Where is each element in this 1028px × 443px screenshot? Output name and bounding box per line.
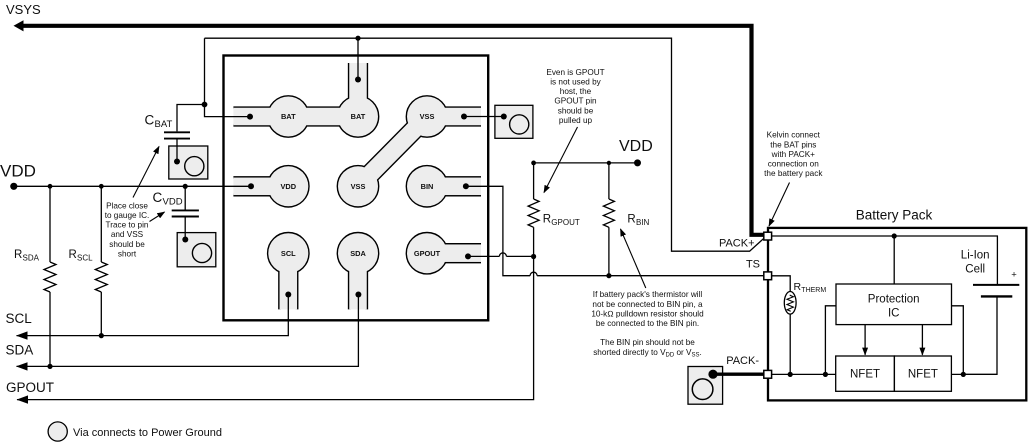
svg-text:THERM: THERM [801,287,826,294]
svg-text:SCL: SCL [6,311,33,326]
svg-text:C: C [145,113,155,128]
svg-text:SDA: SDA [6,343,34,358]
svg-text:R: R [543,214,551,226]
svg-text:Protection: Protection [868,293,920,305]
svg-text:NFET: NFET [908,369,938,381]
svg-text:C: C [153,190,163,205]
svg-text:GPOUT: GPOUT [6,380,54,395]
svg-text:R: R [69,249,77,261]
svg-text:NFET: NFET [850,369,880,381]
svg-text:should be: should be [558,106,594,115]
svg-text:Place close: Place close [106,201,148,210]
svg-text:be connected to the BIN pin.: be connected to the BIN pin. [596,319,699,328]
svg-text:Via connects to Power Ground: Via connects to Power Ground [73,427,222,439]
svg-text:If battery pack's thermistor w: If battery pack's thermistor will [593,290,703,299]
svg-text:+: + [1011,269,1017,280]
svg-text:BIN: BIN [421,182,434,191]
svg-text:GPOUT: GPOUT [551,218,580,227]
svg-text:short: short [118,249,137,258]
svg-text:GPOUT pin: GPOUT pin [554,97,597,106]
svg-text:VDD: VDD [163,196,183,207]
svg-text:The BIN pin should not be: The BIN pin should not be [600,338,695,347]
svg-text:Cell: Cell [965,263,985,275]
svg-text:Li-Ion: Li-Ion [961,250,990,262]
svg-text:BAT: BAT [351,112,366,121]
svg-text:Even is GPOUT: Even is GPOUT [546,68,604,77]
svg-text:and VSS: and VSS [111,230,144,239]
svg-text:connection on: connection on [768,160,819,169]
svg-text:PACK-: PACK- [726,355,759,367]
svg-text:R: R [627,214,635,226]
svg-text:the battery pack: the battery pack [764,169,823,178]
svg-text:VSS: VSS [420,112,435,121]
svg-text:Trace to pin: Trace to pin [106,221,149,230]
svg-text:PACK+: PACK+ [719,237,755,249]
svg-text:IC: IC [888,307,900,319]
svg-text:BIN: BIN [636,218,650,227]
svg-text:SDA: SDA [23,253,40,262]
svg-text:GPOUT: GPOUT [414,249,441,258]
svg-text:R: R [14,249,22,261]
svg-text:is not used by: is not used by [550,78,601,87]
svg-text:VDD: VDD [280,182,296,191]
svg-text:the BAT pins: the BAT pins [770,140,816,149]
svg-text:VSYS: VSYS [6,2,41,17]
svg-text:BAT: BAT [155,119,173,130]
svg-text:host, the: host, the [560,87,592,96]
svg-text:VDD: VDD [0,161,36,180]
svg-text:TS: TS [746,259,760,271]
svg-text:BAT: BAT [281,112,296,121]
svg-text:shorted directly to VDD or VSS: shorted directly to VDD or VSS. [593,348,702,359]
svg-text:VSS: VSS [351,182,366,191]
svg-text:SCL: SCL [77,253,93,262]
svg-text:pulled up: pulled up [559,116,593,125]
svg-text:SCL: SCL [281,249,296,258]
svg-text:Battery Pack: Battery Pack [856,207,933,222]
svg-text:should be: should be [109,240,145,249]
svg-text:10-kΩ pulldown resistor should: 10-kΩ pulldown resistor should [591,309,704,318]
svg-text:with PACK+: with PACK+ [771,150,816,159]
svg-text:not be connected to BIN pin, a: not be connected to BIN pin, a [592,300,703,309]
svg-text:R: R [794,281,802,293]
svg-text:VDD: VDD [619,138,653,155]
svg-text:to gauge IC.: to gauge IC. [105,211,150,220]
svg-text:Kelvin connect: Kelvin connect [767,131,821,140]
svg-text:SDA: SDA [350,249,366,258]
